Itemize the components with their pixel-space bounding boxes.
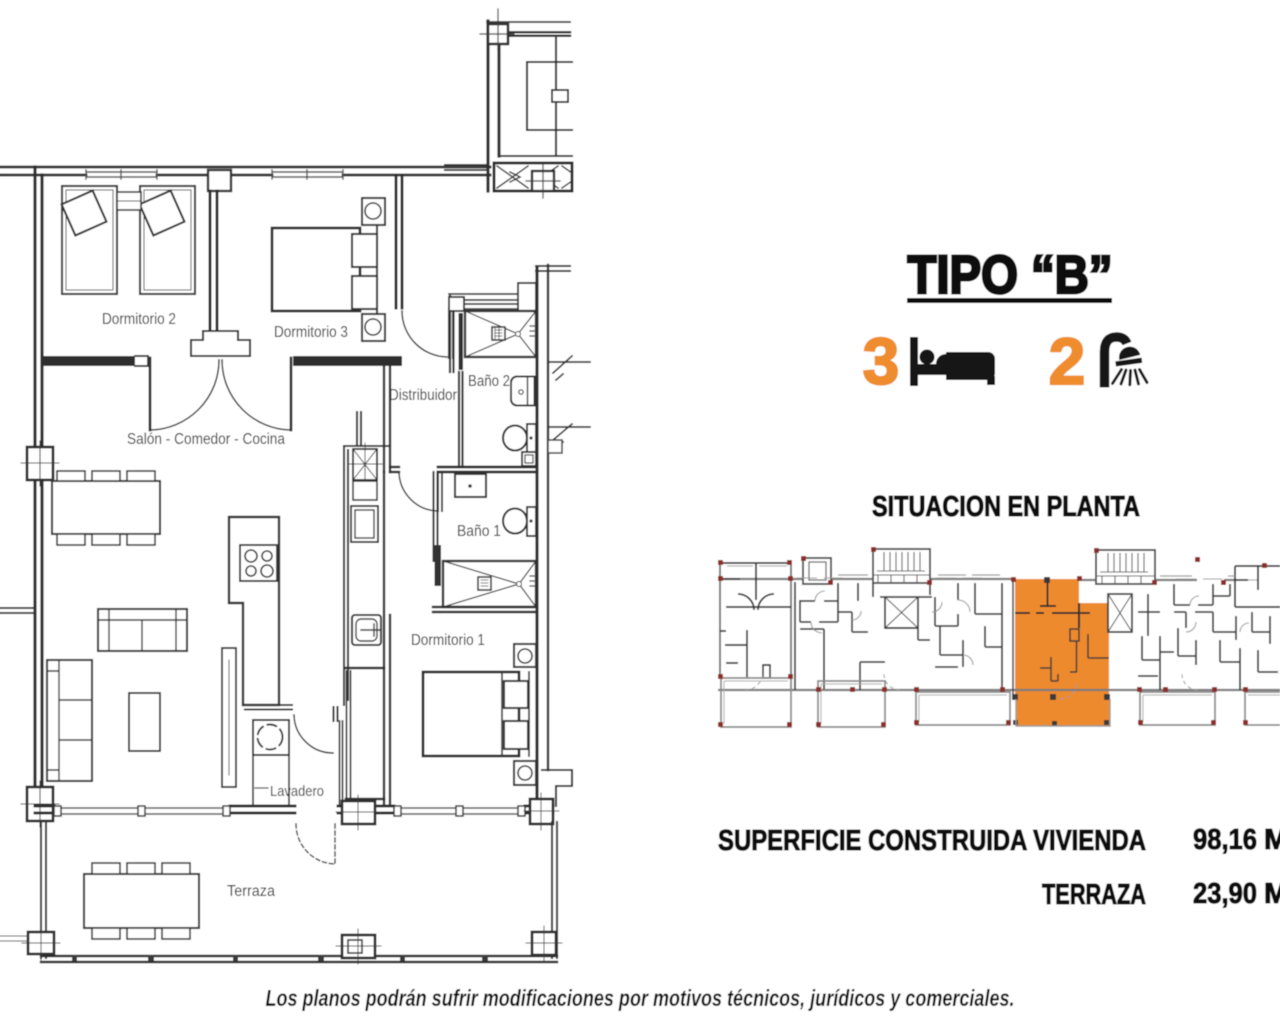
svg-text:SUPERFICIE CONSTRUIDA VIVIENDA: SUPERFICIE CONSTRUIDA VIVIENDA bbox=[718, 825, 1146, 857]
svg-text:23,90: 23,90 bbox=[1193, 878, 1257, 910]
svg-text:2: 2 bbox=[1049, 324, 1086, 398]
svg-text:Baño 1: Baño 1 bbox=[457, 523, 501, 540]
svg-text:Lavadero: Lavadero bbox=[270, 783, 324, 800]
svg-text:SITUACION EN PLANTA: SITUACION EN PLANTA bbox=[872, 491, 1140, 523]
svg-text:TERRAZA: TERRAZA bbox=[1042, 879, 1146, 911]
svg-text:M²: M² bbox=[1264, 824, 1280, 856]
svg-text:Baño 2: Baño 2 bbox=[468, 373, 510, 390]
svg-text:3: 3 bbox=[863, 324, 900, 398]
svg-text:Terraza: Terraza bbox=[227, 883, 275, 900]
svg-text:Dormitorio 2: Dormitorio 2 bbox=[102, 311, 176, 328]
svg-text:TIPO “B”: TIPO “B” bbox=[908, 245, 1113, 305]
svg-text:Dormitorio 3: Dormitorio 3 bbox=[274, 324, 348, 341]
svg-text:Dormitorio 1: Dormitorio 1 bbox=[411, 632, 485, 649]
svg-text:M²: M² bbox=[1264, 878, 1280, 910]
svg-text:Los planos podrán sufrir modif: Los planos podrán sufrir modificaciones … bbox=[266, 985, 1015, 1011]
svg-text:98,16: 98,16 bbox=[1193, 824, 1257, 856]
svg-text:Salón - Comedor - Cocina: Salón - Comedor - Cocina bbox=[127, 431, 285, 448]
svg-text:Distribuidor: Distribuidor bbox=[389, 387, 457, 404]
